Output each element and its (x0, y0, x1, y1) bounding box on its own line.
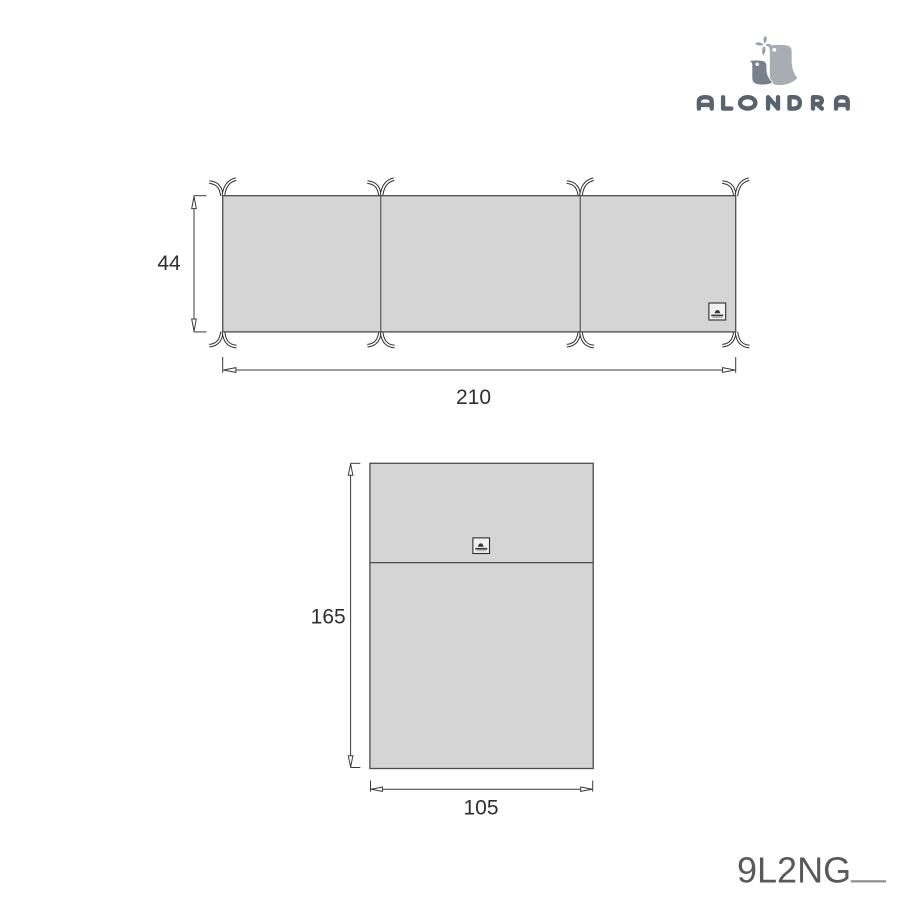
svg-text:165: 165 (311, 606, 346, 629)
svg-text:105: 105 (463, 797, 498, 820)
svg-text:210: 210 (456, 386, 491, 409)
svg-text:9L2NG: 9L2NG (737, 850, 851, 891)
svg-text:44: 44 (157, 252, 181, 275)
